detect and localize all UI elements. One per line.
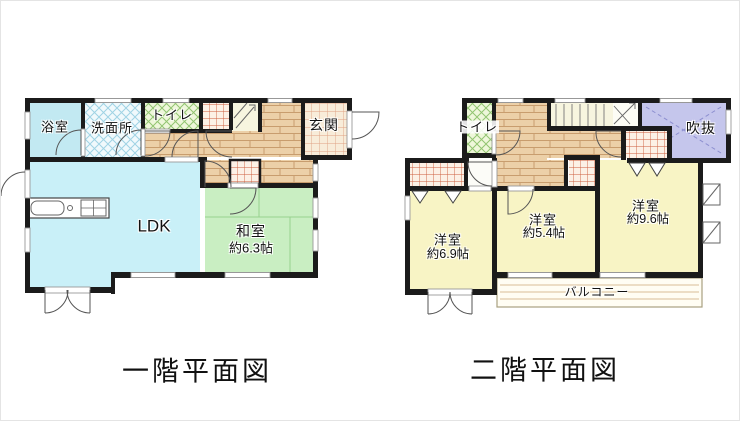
room-label-ldk: LDK bbox=[137, 218, 170, 235]
floorplan-drawing bbox=[0, 0, 740, 421]
floor1-room-fills bbox=[30, 100, 347, 288]
room-label-japanese-room: 和室 bbox=[236, 224, 266, 238]
room-label-toilet1: トイレ bbox=[151, 109, 193, 122]
room-label-bedroom2-size: 約5.4帖 bbox=[523, 227, 565, 240]
room-label-void: 吹抜 bbox=[686, 121, 716, 135]
room-label-entrance: 玄関 bbox=[309, 118, 339, 132]
ldk-terrace-doors bbox=[45, 290, 90, 313]
room-label-bedroom1-size: 約6.9帖 bbox=[427, 248, 469, 261]
bedroom1-closet-area bbox=[410, 163, 464, 186]
room-label-bath: 浴室 bbox=[41, 121, 69, 134]
kitchen-sink bbox=[31, 201, 64, 215]
room-label-bedroom1: 洋室 bbox=[434, 234, 462, 247]
room-label-balcony: バルコニー bbox=[565, 286, 630, 298]
entrance-door bbox=[352, 112, 379, 139]
floor1-caption: 一階平面図 bbox=[122, 359, 272, 386]
floor1-kitchen bbox=[26, 198, 109, 218]
room-label-japanese-room-size: 約6.3帖 bbox=[229, 242, 273, 255]
ldk-side-door bbox=[1, 172, 25, 196]
floor2-caption: 二階平面図 bbox=[470, 358, 620, 385]
bedroom3-closet-area bbox=[625, 131, 667, 158]
room-label-bedroom3-size: 約9.6帖 bbox=[627, 213, 669, 226]
bedroom2-closet-area bbox=[569, 160, 595, 186]
room-label-toilet2: トイレ bbox=[455, 121, 499, 134]
bedroom1-entry-nook bbox=[468, 160, 492, 186]
stair-closet-area bbox=[201, 103, 229, 129]
hall-closet-area bbox=[230, 160, 260, 184]
hall1-upper-area bbox=[145, 131, 301, 157]
floor2-casement-windows bbox=[703, 184, 720, 243]
room-label-bedroom2: 洋室 bbox=[529, 214, 557, 227]
floorplan-canvas: 浴室 洗面所 トイレ 玄関 LDK 和室 約6.3帖 トイレ 吹抜 洋室 約6.… bbox=[0, 0, 740, 421]
room-label-washroom: 洗面所 bbox=[91, 122, 133, 135]
room-label-bedroom3: 洋室 bbox=[632, 200, 660, 213]
